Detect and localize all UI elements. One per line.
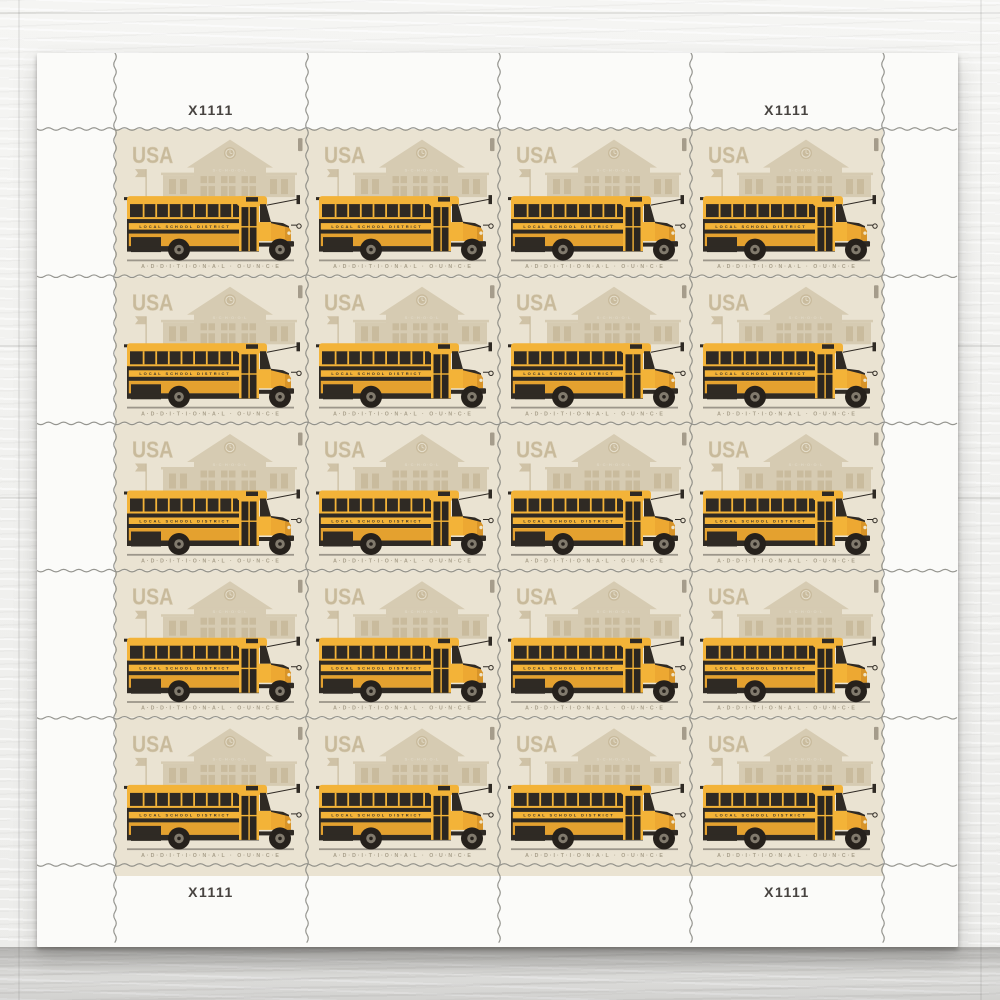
- stamp-sheet: X1111 X1111 X1111 X1111: [37, 53, 958, 947]
- stamp: [499, 129, 691, 276]
- plate-number-top-right: X1111: [764, 102, 810, 118]
- floor-shadow: [0, 947, 1000, 1000]
- stamp: [499, 424, 691, 571]
- stamp: [691, 276, 883, 423]
- stamp: [307, 276, 499, 423]
- plank-seam: [18, 0, 20, 1000]
- stamp: [691, 571, 883, 718]
- stamp-grid: [115, 129, 883, 865]
- stamp: [499, 718, 691, 865]
- stamp: [691, 129, 883, 276]
- stamp: [115, 276, 307, 423]
- stamp: [499, 276, 691, 423]
- plank-seam: [980, 0, 982, 1000]
- stamp: [307, 718, 499, 865]
- stamp: [307, 571, 499, 718]
- stamp: [691, 424, 883, 571]
- plate-number-top-left: X1111: [188, 102, 234, 118]
- stamp: [115, 424, 307, 571]
- stamp: [115, 129, 307, 276]
- perforation-line: [37, 128, 957, 131]
- plate-number-bottom-left: X1111: [188, 884, 234, 900]
- plank-seam: [0, 12, 1000, 14]
- stamp: [307, 129, 499, 276]
- stamp: [115, 718, 307, 865]
- stamp-pane: [37, 53, 958, 947]
- stamp: [115, 571, 307, 718]
- plate-number-bottom-right: X1111: [764, 884, 810, 900]
- stamp: [691, 718, 883, 865]
- stamp: [307, 424, 499, 571]
- stamp: [499, 571, 691, 718]
